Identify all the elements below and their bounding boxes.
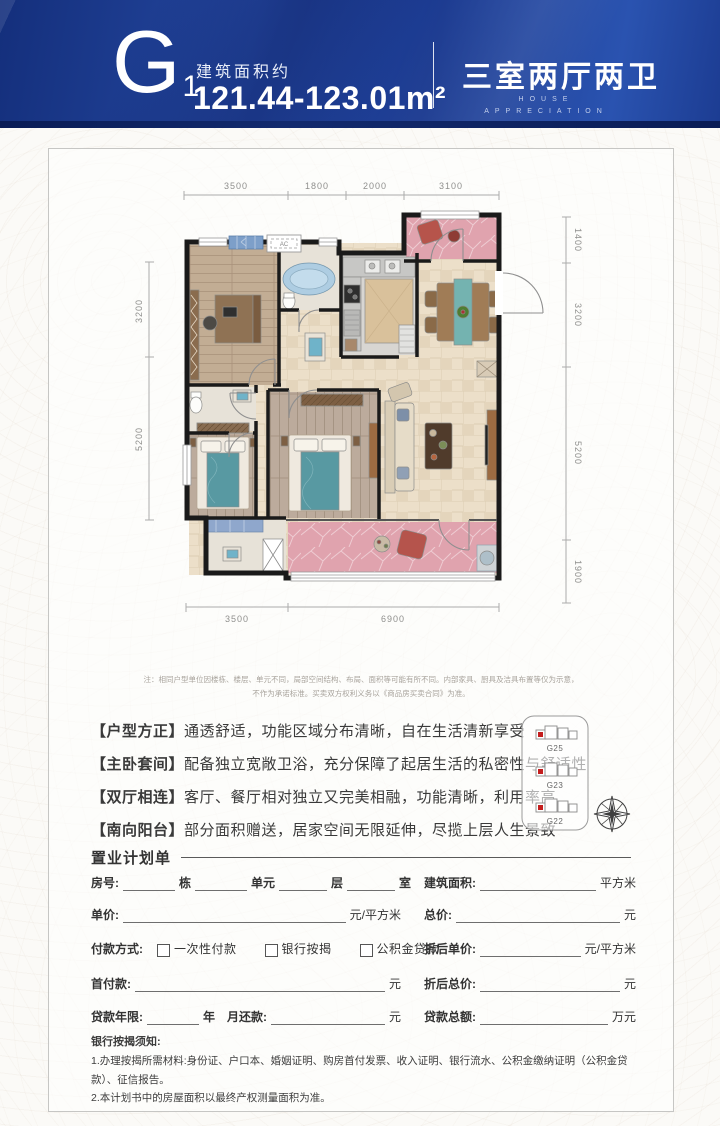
entry-opening [495, 271, 503, 315]
sofa-back [385, 401, 395, 493]
form-title-row: 置业计划单 [91, 847, 631, 868]
bookshelf [253, 295, 261, 343]
laptop [223, 307, 237, 317]
desk-chair [203, 316, 217, 330]
room-label: 房号: [91, 874, 119, 891]
subtitle-house: HOUSE [519, 96, 574, 103]
room-building-blank [123, 877, 175, 891]
bank-notice: 银行按揭须知: 1.办理按揭所需材料:身份证、户口本、婚姻证明、购房首付发票、收… [91, 1033, 636, 1107]
bank-notice-item: 2.本计划书中的房屋面积以最终产权测量面积为准。 [91, 1089, 636, 1107]
pillow [201, 441, 221, 452]
discount-price-label: 折后单价: [424, 940, 476, 957]
downpayment-unit: 元 [389, 975, 401, 992]
disclaimer-line2: 不作为承诺标准。买卖双方权利义务以《商品房买卖合同》为准。 [252, 689, 470, 698]
unit-danyuan: 单元 [251, 874, 275, 891]
sofa-pillow [397, 409, 409, 421]
feature-desc: 部分面积赠送，居家空间无限延伸，尽揽上层人生景致 [184, 822, 556, 839]
feature-tag: 【双厅相连】 [91, 789, 184, 806]
dining-chair [425, 317, 438, 333]
window [421, 211, 479, 219]
area-field-label: 建筑面积: [424, 874, 476, 891]
unit-dong: 栋 [179, 874, 191, 891]
monthly-label: 月还款: [227, 1008, 267, 1025]
area-value: 121.44-123.01m² [193, 80, 446, 117]
header-bottom-strip [0, 121, 720, 128]
window-seat [229, 236, 263, 249]
nightstand [353, 436, 360, 446]
unit-marker [538, 732, 543, 737]
form-row-discount-total: 折后总价: 元 [424, 976, 636, 992]
form-row-downpayment: 首付款: 元 [91, 976, 401, 992]
floorplan-drawing: AC [126, 175, 616, 645]
header-banner: G1 建筑面积约 121.44-123.01m² 三室两厅两卫 HOUSE AP… [0, 0, 720, 128]
dim-top-4: 3100 [439, 181, 463, 191]
downpayment-label: 首付款: [91, 975, 131, 992]
pillow [225, 441, 245, 452]
area-blank [480, 877, 596, 891]
layout-type: 三室两厅两卫 [462, 52, 660, 96]
dim-bottom-1: 3500 [225, 614, 249, 624]
tv [485, 425, 488, 465]
loan-total-blank [480, 1011, 608, 1025]
feature-tag: 【南向阳台】 [91, 822, 184, 839]
layout-subtitle-en: HOUSE APPRECIATION [462, 94, 630, 118]
site-map: G25 G23 G22 [504, 704, 654, 844]
discount-price-unit: 元/平方米 [585, 940, 636, 957]
discount-total-blank [480, 978, 620, 992]
bed2-blanket [301, 452, 339, 510]
oven [344, 310, 360, 336]
disclaimer: 注：相同户型单位因楼栋、楼层、单元不同，局部空间结构、布局、面积等可能有所不同。… [49, 673, 673, 700]
dim-top-1: 3500 [224, 181, 248, 191]
building-label: G22 [547, 817, 564, 826]
coffee-table [425, 423, 452, 469]
checkbox-full-payment [157, 944, 170, 957]
form-row-room: 房号: 栋 单元 层 室 [91, 875, 415, 891]
dining-chair [425, 291, 438, 307]
loan-years-unit: 年 [203, 1008, 215, 1025]
dim-right-4: 1900 [573, 560, 583, 584]
south-balcony [288, 522, 497, 573]
unit-shi: 室 [399, 874, 411, 891]
loan-years-label: 贷款年限: [91, 1008, 143, 1025]
floorplan-flyer: { "header": { "unit_code": "G", "unit_co… [0, 0, 720, 1126]
feature-tag: 【主卧套间】 [91, 756, 184, 773]
area-label: 建筑面积约 [196, 58, 291, 82]
feature-desc: 通透舒适，功能区域分布清晰，自在生活清新享受 [184, 723, 525, 740]
dim-top-2: 1800 [305, 181, 329, 191]
header-divider [433, 42, 434, 108]
dim-left-1: 3200 [134, 299, 144, 323]
payment-label: 付款方式: [91, 940, 143, 957]
sofa-pillow [397, 467, 409, 479]
form-row-total: 总价: 元 [424, 907, 636, 923]
main-entry-door [503, 273, 543, 313]
cooktop [344, 285, 360, 303]
room-floor-blank [279, 877, 327, 891]
form-row-loan: 贷款年限: 年 月还款: 元 [91, 1009, 401, 1025]
price-label: 单价: [91, 906, 119, 923]
downpayment-blank [135, 978, 385, 992]
total-unit: 元 [624, 906, 636, 923]
building-label: G23 [547, 781, 564, 790]
pillow [322, 439, 346, 451]
form-row-price: 单价: 元/平方米 [91, 907, 401, 923]
dim-top-3: 2000 [363, 181, 387, 191]
dim-right-2: 3200 [573, 303, 583, 327]
room-unit-blank [195, 877, 247, 891]
study-wardrobe [190, 290, 199, 380]
loan-total-unit: 万元 [612, 1008, 636, 1025]
form-row-discount-price: 折后单价: 元/平方米 [424, 941, 636, 957]
ac-label: AC [280, 242, 289, 248]
study-desk [215, 295, 253, 343]
checkbox-mortgage [265, 944, 278, 957]
option-full-payment: 一次性付款 [174, 940, 237, 957]
room-number-blank [347, 877, 395, 891]
nightstand [281, 436, 288, 446]
monthly-unit: 元 [389, 1008, 401, 1025]
checkbox-provident-fund [360, 944, 373, 957]
loan-total-label: 贷款总额: [424, 1008, 476, 1025]
disclaimer-line1: 注：相同户型单位因楼栋、楼层、单元不同，局部空间结构、布局、面积等可能有所不同。… [144, 675, 579, 684]
window [183, 445, 191, 485]
dim-bottom-2: 6900 [381, 614, 405, 624]
unit-marker [538, 805, 543, 810]
unit-ceng: 层 [331, 874, 343, 891]
form-title-rule [181, 857, 631, 858]
form-row-payment: 付款方式: 一次性付款 银行按揭 公积金贷款 [91, 941, 439, 957]
feature-tag: 【户型方正】 [91, 723, 184, 740]
pillow [294, 439, 318, 451]
form-row-area: 建筑面积: 平方米 [424, 875, 636, 891]
tv-cabinet [487, 410, 497, 480]
dim-left-2: 5200 [134, 427, 144, 451]
price-unit: 元/平方米 [350, 906, 401, 923]
discount-total-unit: 元 [624, 975, 636, 992]
subtitle-appreciation: APPRECIATION [484, 108, 608, 115]
discount-price-blank [480, 943, 581, 957]
bay-window [206, 519, 263, 532]
vanity-sink [309, 338, 322, 356]
toilet-2 [190, 397, 202, 413]
window [319, 238, 337, 246]
form-title: 置业计划单 [91, 847, 171, 868]
unit-marker [538, 769, 543, 774]
unit-code: G1 [112, 18, 199, 106]
total-blank [456, 909, 620, 923]
loan-years-blank [147, 1011, 199, 1025]
feature-desc: 客厅、餐厅相对独立又完美相融，功能清晰，利用率高 [184, 789, 556, 806]
building-label: G25 [547, 744, 564, 753]
content-card: AC [48, 148, 674, 1112]
form-row-loan-total: 贷款总额: 万元 [424, 1009, 636, 1025]
ac-platform: AC [267, 235, 301, 252]
bank-notice-title: 银行按揭须知: [91, 1033, 636, 1052]
window [199, 238, 227, 246]
balcony-table [374, 536, 390, 552]
balcony-glazing [291, 572, 495, 581]
dim-right-3: 5200 [573, 441, 583, 465]
area-unit: 平方米 [600, 874, 636, 891]
option-mortgage: 银行按揭 [282, 940, 332, 957]
discount-total-label: 折后总价: [424, 975, 476, 992]
total-label: 总价: [424, 906, 452, 923]
bank-notice-item: 1.办理按揭所需材料:身份证、户口本、婚姻证明、购房首付发票、收入证明、银行流水… [91, 1052, 636, 1089]
price-blank [123, 909, 346, 923]
monthly-blank [271, 1011, 385, 1025]
kitchen-cart [345, 339, 357, 351]
compass-icon [594, 796, 630, 832]
dim-right-1: 1400 [573, 228, 583, 252]
